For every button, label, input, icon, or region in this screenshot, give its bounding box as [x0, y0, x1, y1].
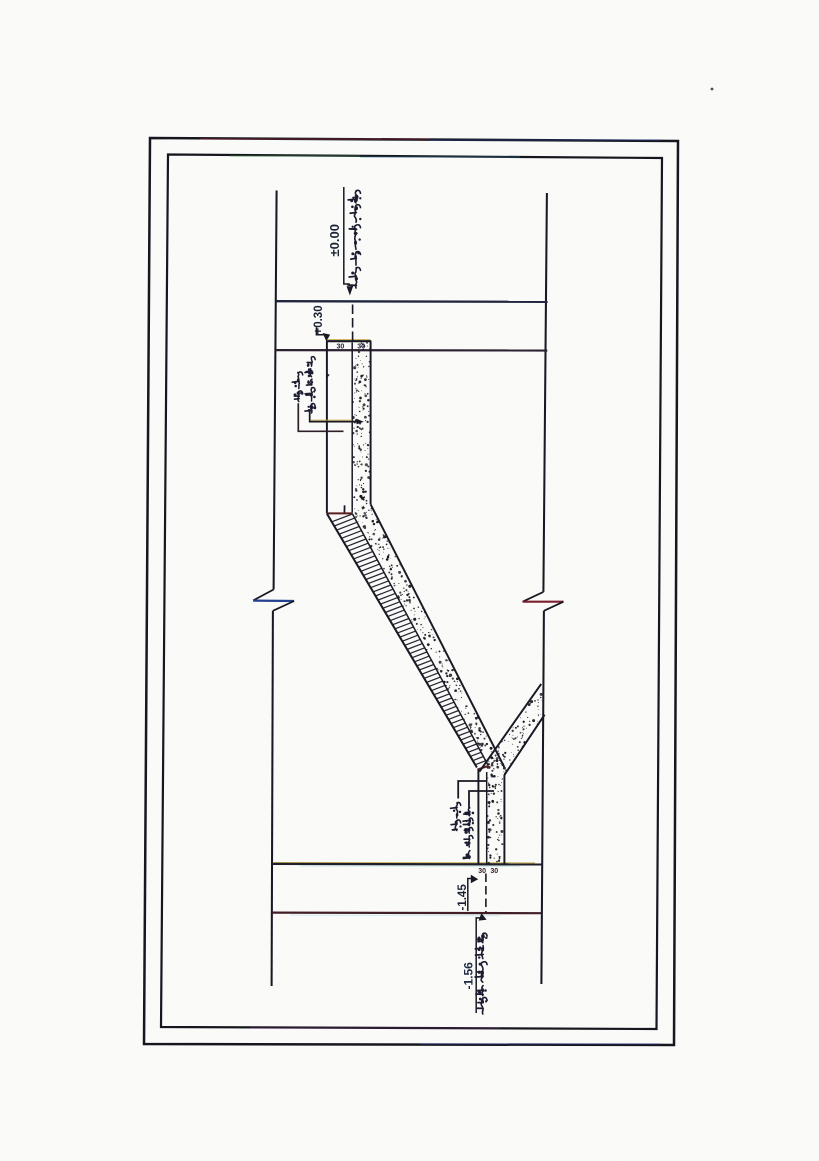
svg-text:+0.30: +0.30	[313, 305, 325, 334]
svg-text:30: 30	[478, 868, 486, 875]
svg-text:30: 30	[490, 868, 498, 875]
svg-text:30: 30	[357, 344, 365, 351]
svg-text:30: 30	[337, 344, 345, 351]
svg-text:-1.56: -1.56	[461, 962, 475, 990]
svg-text:±0.00: ±0.00	[327, 224, 342, 256]
